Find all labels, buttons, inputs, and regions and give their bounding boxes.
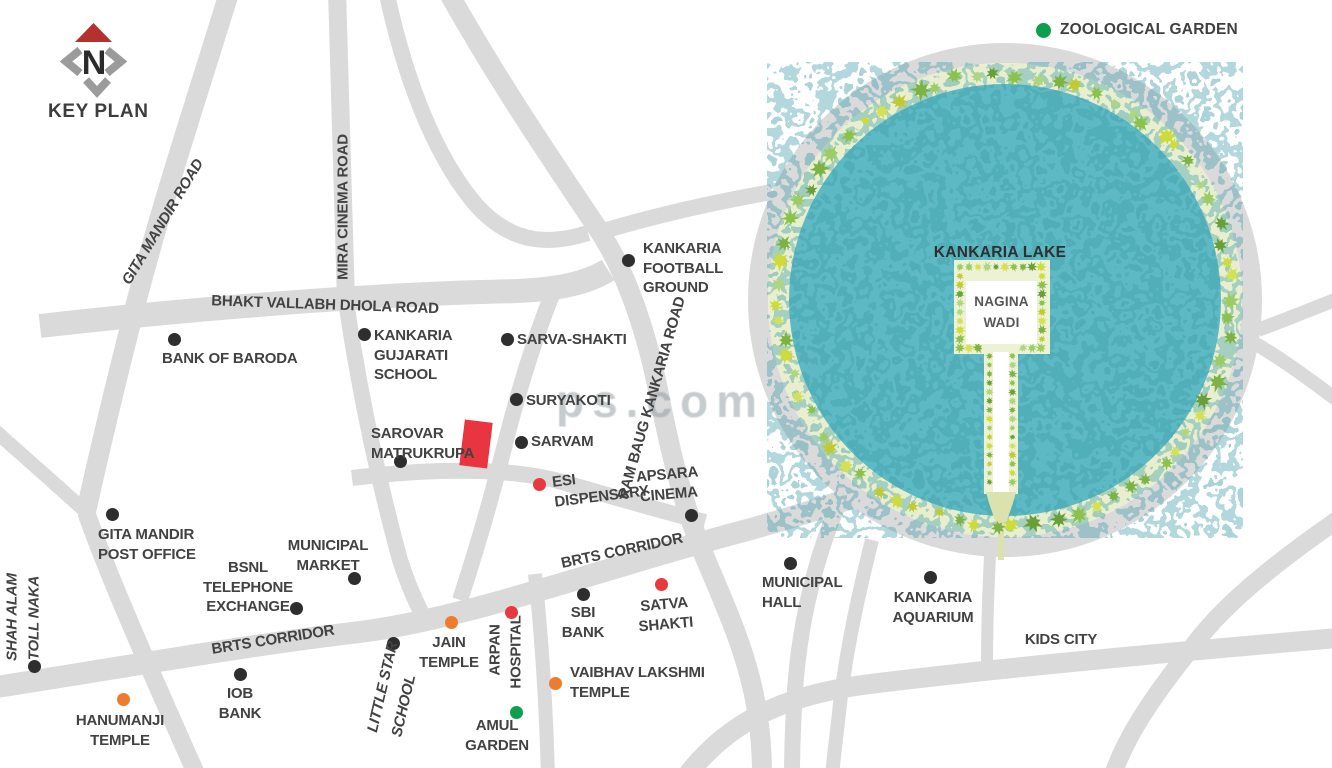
- label-bsnl-telephone-exchange: BSNLTELEPHONEEXCHANGE: [203, 558, 293, 617]
- label-bank-of-baroda: BANK OF BARODA: [162, 349, 298, 369]
- label-municipal-market: MUNICIPALMARKET: [288, 536, 368, 575]
- label-arpan: ARPAN: [485, 624, 505, 675]
- label-kankaria-football-ground: KANKARIAFOOTBALLGROUND: [643, 239, 723, 298]
- label-apsara-cinema: APSARACINEMA: [635, 462, 700, 506]
- dot-gita-mandir-post-office: [106, 508, 119, 521]
- label-gita-mandir-post-office: GITA MANDIRPOST OFFICE: [98, 525, 196, 564]
- nagina-pier-walkway: [993, 352, 1009, 492]
- dot-satva-shakti: [655, 578, 668, 591]
- dot-esi-dispensary: [533, 478, 546, 491]
- label-iob-bank: IOBBANK: [219, 684, 262, 723]
- dot-kankaria-aquarium: [924, 571, 937, 584]
- label-kankaria-aquarium: KANKARIAAQUARIUM: [893, 588, 974, 627]
- dot-sarvam: [515, 436, 528, 449]
- road-lake-west-connector: [600, 192, 772, 232]
- label-sbi-bank: SBIBANK: [562, 603, 605, 642]
- road-east-branch-lower: [1256, 344, 1332, 402]
- east-chevron-icon: [107, 50, 121, 73]
- label-kankaria-gujarati-school: KANKARIAGUJARATISCHOOL: [374, 326, 452, 385]
- road-top-fork-west: [386, 0, 588, 240]
- dot-suryakoti: [510, 393, 523, 406]
- road-south-road: [685, 638, 1332, 768]
- zoological-garden-label: ZOOLOGICAL GARDEN: [1060, 21, 1238, 39]
- west-chevron-icon: [66, 50, 80, 73]
- dot-municipal-hall: [784, 557, 797, 570]
- north-arrow-icon: [75, 23, 112, 42]
- dot-sarva-shakti: [501, 333, 514, 346]
- road-west-connector: [0, 428, 86, 512]
- dot-jain-temple: [445, 616, 458, 629]
- label-mira-cinema-road: MIRA CINEMA ROAD: [333, 134, 353, 280]
- label-shah-alam: SHAH ALAM: [2, 573, 22, 661]
- label-hanumanji-temple: HANUMANJITEMPLE: [76, 711, 164, 750]
- lake-name-label: KANKARIA LAKE: [934, 243, 1067, 263]
- dot-sbi-bank: [577, 588, 590, 601]
- compass-rose-icon: N: [53, 20, 143, 100]
- dot-apsara-cinema: [685, 509, 698, 522]
- label-vaibhav-lakshmi-temple: VAIBHAV LAKSHMITEMPLE: [570, 663, 705, 702]
- nagina-wadi-box: NAGINA WADI: [966, 281, 1037, 344]
- label-jain-temple: JAINTEMPLE: [419, 633, 479, 672]
- key-plan-map: NAGINA WADI KANKARIA LAKE ps.com N KEY P…: [0, 0, 1332, 768]
- label-sarva-shakti: SARVA-SHAKTI: [517, 330, 627, 350]
- key-plan-title: KEY PLAN: [48, 101, 149, 123]
- label-satva-shakti: SATVASHAKTI: [636, 593, 694, 637]
- label-toll-naka: TOLL NAKA: [24, 576, 44, 660]
- label-municipal-hall: MUNICIPALHALL: [762, 573, 842, 612]
- label-arpan-hospital: HOSPITAL: [506, 615, 526, 688]
- road-aquarium-road: [987, 556, 990, 668]
- dot-kankaria-gujarati-school: [358, 328, 371, 341]
- zoological-garden-dot-icon: [1036, 23, 1051, 38]
- label-amul-garden: AMULGARDEN: [465, 716, 529, 755]
- dot-bank-of-baroda: [168, 333, 181, 346]
- legend: ZOOLOGICAL GARDEN: [1036, 21, 1238, 39]
- label-sarovar-matrukrupa: SAROVARMATRUKRUPA: [371, 424, 474, 463]
- dot-kankaria-football-ground: [622, 254, 635, 267]
- road-east-branch-upper: [1258, 298, 1332, 330]
- dot-hanumanji-temple: [117, 693, 130, 706]
- dot-shah-alam: [28, 660, 41, 673]
- label-kids-city: KIDS CITY: [1025, 630, 1097, 650]
- road-hospital-road: [535, 574, 548, 768]
- dot-vaibhav-lakshmi-temple: [549, 677, 562, 690]
- label-suryakoti: SURYAKOTI: [526, 391, 611, 411]
- north-letter: N: [82, 44, 107, 82]
- label-sarvam: SARVAM: [531, 432, 593, 452]
- compass-north-indicator: N: [53, 20, 143, 105]
- dot-iob-bank: [234, 668, 247, 681]
